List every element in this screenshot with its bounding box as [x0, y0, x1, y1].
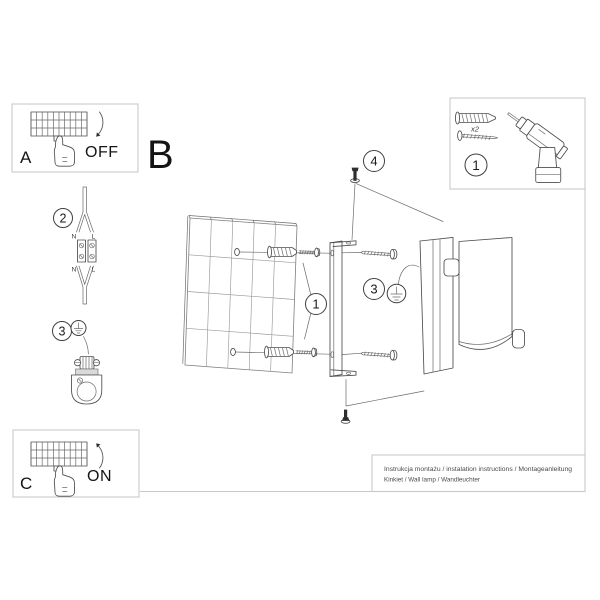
toolbox-step-badge: 1	[465, 154, 487, 176]
wall-lamp-body	[420, 237, 525, 374]
panel-c-label: C	[20, 474, 32, 493]
section-b-label: B	[147, 133, 174, 177]
step-3-number: 3	[59, 324, 66, 338]
toolbox-step-number: 1	[472, 158, 480, 173]
fixing-screw-bottom	[341, 380, 424, 424]
wall-hole-top	[235, 248, 240, 255]
ground-badge-number: 3	[370, 282, 377, 297]
fixing-screw-top	[351, 168, 443, 240]
caption-frame	[372, 455, 585, 492]
terminal-block-icon	[77, 187, 97, 304]
main-diagram: 1 4 3	[183, 151, 525, 424]
ground-symbol-icon	[71, 321, 86, 336]
cable-clamp-icon	[72, 357, 102, 405]
lamp-back-plate	[420, 237, 453, 374]
caption-line1: Instrukcja montażu / instalation instruc…	[384, 466, 572, 473]
wire-l-bottom: L	[92, 267, 96, 274]
screw-badge-number: 4	[370, 154, 377, 169]
lamp-side-knob	[513, 330, 525, 349]
panel-a-label: A	[20, 148, 32, 167]
power-on-label: ON	[87, 468, 112, 485]
bracket-screw-bottom	[361, 351, 397, 360]
power-off-label: OFF	[85, 144, 119, 161]
wire-n-top: N	[72, 234, 77, 241]
wiring-step: 2 N L N L	[54, 187, 97, 304]
panel-a: A OFF	[12, 104, 138, 172]
wall-anchor-icon	[455, 112, 495, 124]
mounting-bracket	[330, 241, 356, 377]
instruction-sheet: A OFF B x2 1	[0, 0, 600, 600]
anchor-badge-number: 1	[312, 297, 319, 312]
toolbox-frame	[450, 98, 585, 189]
wall-hole-bottom	[231, 348, 236, 355]
ground-step: 3	[53, 321, 102, 405]
bracket-screw-top	[361, 250, 397, 259]
caption-line2: Kinkiet / Wall lamp / Wandleuchter	[384, 477, 481, 484]
anchor-quantity-label: x2	[470, 125, 480, 134]
wire-n-bottom: N	[72, 267, 77, 274]
caption-box: Instrukcja montażu / instalation instruc…	[372, 455, 585, 492]
lamp-ground-wire	[398, 265, 419, 284]
ground-wire	[84, 337, 89, 355]
toolbox-panel: x2 1	[450, 98, 585, 194]
step-2-number: 2	[60, 211, 67, 225]
lamp-mount-tab	[444, 259, 459, 276]
lamp-shade	[459, 238, 512, 350]
wire-l-top: L	[92, 234, 96, 241]
panel-c: C ON	[13, 430, 139, 497]
ground-symbol-main-icon	[387, 284, 406, 303]
